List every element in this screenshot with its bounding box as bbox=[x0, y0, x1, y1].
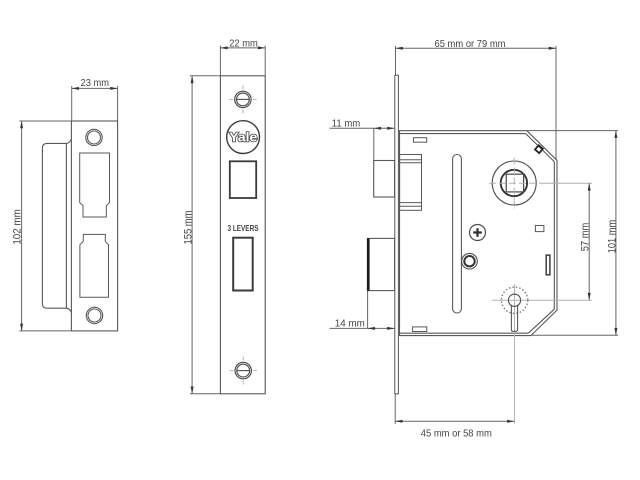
svg-text:65 mm or 79 mm: 65 mm or 79 mm bbox=[435, 38, 506, 50]
svg-text:14 mm: 14 mm bbox=[335, 318, 365, 330]
svg-text:3 LEVERS: 3 LEVERS bbox=[228, 223, 259, 233]
svg-text:45 mm or 58 mm: 45 mm or 58 mm bbox=[421, 428, 492, 440]
svg-text:101 mm: 101 mm bbox=[606, 220, 618, 254]
svg-text:23 mm: 23 mm bbox=[81, 77, 110, 89]
svg-text:22 mm: 22 mm bbox=[229, 37, 258, 49]
svg-text:Yale: Yale bbox=[229, 131, 257, 145]
svg-text:57 mm: 57 mm bbox=[580, 223, 592, 252]
svg-text:102 mm: 102 mm bbox=[11, 209, 23, 245]
svg-text:155 mm: 155 mm bbox=[182, 211, 194, 245]
svg-text:11 mm: 11 mm bbox=[332, 117, 361, 129]
